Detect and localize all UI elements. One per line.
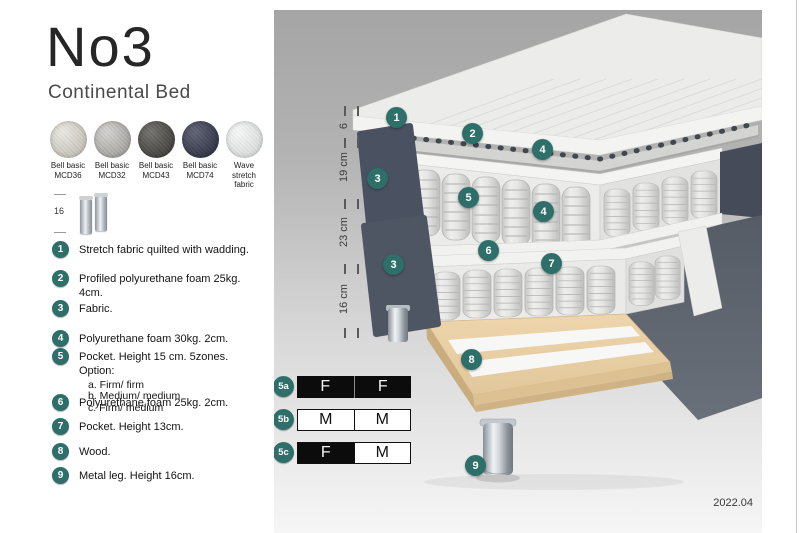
callout-4-lower: 4	[533, 201, 554, 222]
legend-item-1: 1 Stretch fabric quilted with wadding.	[52, 241, 249, 258]
legend-number-badge: 9	[52, 467, 69, 484]
swatch-mcd74: Bell basicMCD74	[181, 121, 219, 190]
firmness-bar-5c: F M	[297, 442, 411, 464]
metal-leg-icon	[80, 199, 92, 234]
ruler-tick	[344, 264, 346, 274]
legend-item-7: 7 Pocket. Height 13cm.	[52, 418, 184, 435]
version-label: 2022.04	[713, 497, 753, 509]
callout-6: 6	[478, 240, 499, 261]
callout-5: 5	[458, 187, 479, 208]
firmness-badge-5c: 5c	[274, 442, 294, 463]
fabric-swatch-icon	[182, 121, 219, 158]
legend-item-8: 8 Wood.	[52, 443, 111, 460]
swatch-mcd36: Bell basicMCD36	[49, 121, 87, 190]
info-panel: No3 Continental Bed Bell basicMCD36 Bell…	[0, 0, 270, 533]
ruler-label-16cm: 16 cm	[338, 277, 352, 321]
firmness-row-5c: 5c F M	[274, 441, 411, 464]
legend-number-badge: 7	[52, 418, 69, 435]
legend-number-badge: 2	[52, 270, 69, 287]
fabric-swatch-icon	[226, 121, 263, 158]
ruler-label-23cm: 23 cm	[338, 210, 352, 254]
firmness-cell: F	[354, 376, 412, 398]
firmness-badge-5a: 5a	[274, 376, 294, 397]
firmness-cell: M	[354, 443, 411, 463]
ruler-tick	[357, 106, 359, 116]
diagram-panel: 6 19 cm 23 cm 16 cm 1 2 4 3 5 4 6 7 3 8 …	[270, 0, 800, 533]
ruler-tick	[357, 138, 359, 148]
callout-9: 9	[465, 455, 486, 476]
legend-item-3: 3 Fabric.	[52, 300, 113, 317]
swatch-mcd43: Bell basicMCD43	[137, 121, 175, 190]
ruler-tick	[344, 199, 346, 209]
legend-item-9: 9 Metal leg. Height 16cm.	[52, 467, 195, 484]
legend-item-4: 4 Polyurethane foam 30kg. 2cm.	[52, 330, 228, 347]
fabric-swatch-icon	[50, 121, 87, 158]
product-sheet: No3 Continental Bed Bell basicMCD36 Bell…	[0, 0, 800, 533]
swatch-wave-stretch: Wavestretch fabric	[225, 121, 263, 190]
ruler-tick	[357, 199, 359, 209]
metal-leg-thumbnail: 16	[54, 186, 132, 242]
swatch-mcd32: Bell basicMCD32	[93, 121, 131, 190]
fabric-swatches: Bell basicMCD36 Bell basicMCD32 Bell bas…	[49, 121, 263, 190]
callout-1: 1	[386, 107, 407, 128]
callout-7: 7	[541, 253, 562, 274]
callout-3-lower: 3	[383, 254, 404, 275]
callout-3-upper: 3	[367, 168, 388, 189]
callout-2: 2	[462, 123, 483, 144]
metal-leg-icon	[95, 196, 107, 231]
firmness-bar-5a: F F	[297, 376, 411, 398]
fabric-swatch-icon	[138, 121, 175, 158]
bed-cutaway-illustration: 6 19 cm 23 cm 16 cm 1 2 4 3 5 4 6 7 3 8 …	[274, 10, 762, 533]
legend-item-2: 2 Profiled polyurethane foam 25kg. 4cm.	[52, 270, 266, 301]
firmness-cell: F	[297, 376, 354, 398]
page-edge-line	[796, 0, 797, 533]
firmness-row-5a: 5a F F	[274, 375, 411, 398]
page-subtitle: Continental Bed	[48, 82, 191, 104]
legend-number-badge: 8	[52, 443, 69, 460]
ruler-tick	[357, 328, 359, 338]
legend-item-6: 6 Polyurethane foam 25kg. 2cm.	[52, 394, 228, 411]
leg-height-label: 16	[54, 206, 64, 216]
fabric-swatch-icon	[94, 121, 131, 158]
legend-number-badge: 1	[52, 241, 69, 258]
page-title: No3	[46, 14, 155, 79]
ruler-tick	[344, 328, 346, 338]
legend-number-badge: 3	[52, 300, 69, 317]
callout-8: 8	[461, 349, 482, 370]
firmness-badge-5b: 5b	[274, 409, 294, 430]
legend-number-badge: 5	[52, 348, 69, 365]
firmness-row-5b: 5b M M	[274, 408, 411, 431]
firmness-cell: F	[298, 443, 354, 463]
ruler-tick	[357, 264, 359, 274]
callout-4-upper: 4	[532, 139, 553, 160]
legend-number-badge: 4	[52, 330, 69, 347]
firmness-cell: M	[354, 410, 411, 430]
ruler-label-19cm: 19 cm	[338, 145, 352, 189]
firmness-cell: M	[298, 410, 354, 430]
legend-number-badge: 6	[52, 394, 69, 411]
firmness-bar-5b: M M	[297, 409, 411, 431]
